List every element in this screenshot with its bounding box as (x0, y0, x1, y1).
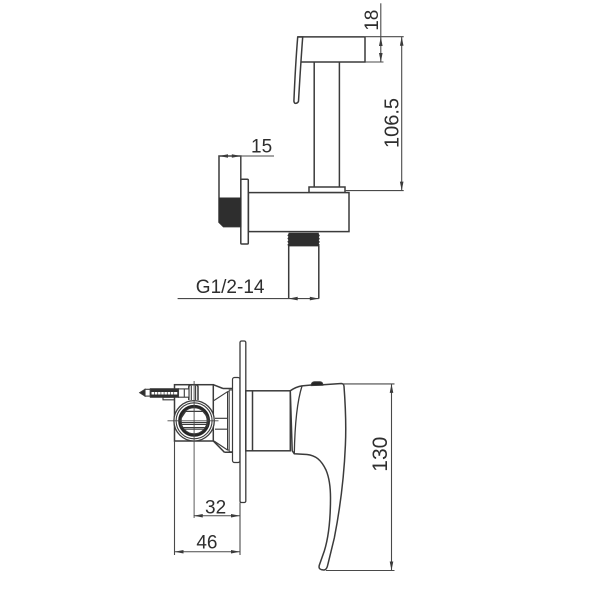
svg-text:18: 18 (362, 10, 383, 31)
svg-text:130: 130 (369, 437, 392, 472)
svg-text:32: 32 (205, 497, 226, 518)
svg-text:15: 15 (251, 136, 272, 157)
svg-text:G1/2-14: G1/2-14 (196, 277, 265, 298)
svg-text:106.5: 106.5 (381, 98, 403, 148)
svg-text:46: 46 (196, 533, 217, 554)
